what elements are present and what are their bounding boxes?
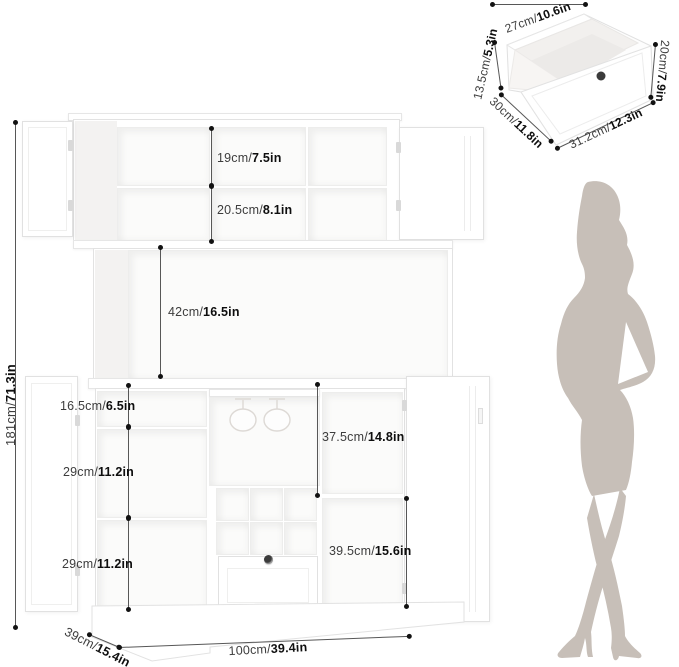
dim-in-value: 7.9in (653, 73, 669, 102)
dim-label-left-bottom: 29cm/11.2in (62, 558, 133, 572)
dim-in-value: 6.5in (106, 399, 136, 413)
dim-label-middle-open: 42cm/16.5in (168, 306, 240, 320)
dim-cm-value: 19cm/ (217, 151, 252, 165)
dim-in-value: 16.5in (203, 305, 240, 319)
dim-cm-value: 100cm/ (228, 642, 271, 658)
dim-cm-value: 20cm/ (655, 40, 672, 75)
dim-label-right-upper: 37.5cm/14.8in (322, 431, 405, 445)
dim-in-value: 14.8in (368, 430, 405, 444)
drawer-detail-knob (597, 72, 606, 81)
dim-cm-value: 29cm/ (63, 465, 98, 479)
dim-in-value: 8.1in (263, 203, 293, 217)
dim-in-value: 11.2in (97, 557, 133, 571)
dim-cm-value: 37.5cm/ (322, 430, 368, 444)
dim-cm-value: 20.5cm/ (217, 203, 263, 217)
dimension-line-hutch-lower (211, 186, 212, 242)
dim-in-value: 71.3in (3, 364, 18, 402)
dimension-line-hutch-upper (211, 128, 212, 186)
dim-cm-value: 42cm/ (168, 305, 203, 319)
dim-in-value: 15.6in (375, 544, 412, 558)
dim-cm-value: 16.5cm/ (60, 399, 106, 413)
dim-label-hutch-lower: 20.5cm/8.1in (217, 204, 292, 218)
dim-cm-value: 39.5cm/ (329, 544, 375, 558)
dim-cm-value: 29cm/ (62, 557, 97, 571)
dim-label-total-height: 181cm/71.3in (4, 364, 18, 446)
dim-label-left-top: 16.5cm/6.5in (60, 400, 135, 414)
dim-label-left-mid: 29cm/11.2in (63, 466, 134, 480)
dimension-line-right-upper (317, 384, 318, 496)
dim-label-right-lower: 39.5cm/15.6in (329, 545, 412, 559)
dim-in-value: 7.5in (252, 151, 282, 165)
dim-label-hutch-upper: 19cm/7.5in (217, 152, 282, 166)
dim-in-value: 39.4in (270, 640, 307, 656)
dimension-line-drawer-top (492, 4, 586, 5)
woman-silhouette-icon (528, 178, 668, 662)
dim-in-value: 11.2in (98, 465, 134, 479)
dim-cm-value: 181cm/ (3, 402, 18, 446)
dimension-line-middle-open (160, 247, 161, 377)
product-dimension-diagram: 181cm/71.3in 19cm/7.5in 20.5cm/8.1in 42c… (0, 0, 679, 667)
